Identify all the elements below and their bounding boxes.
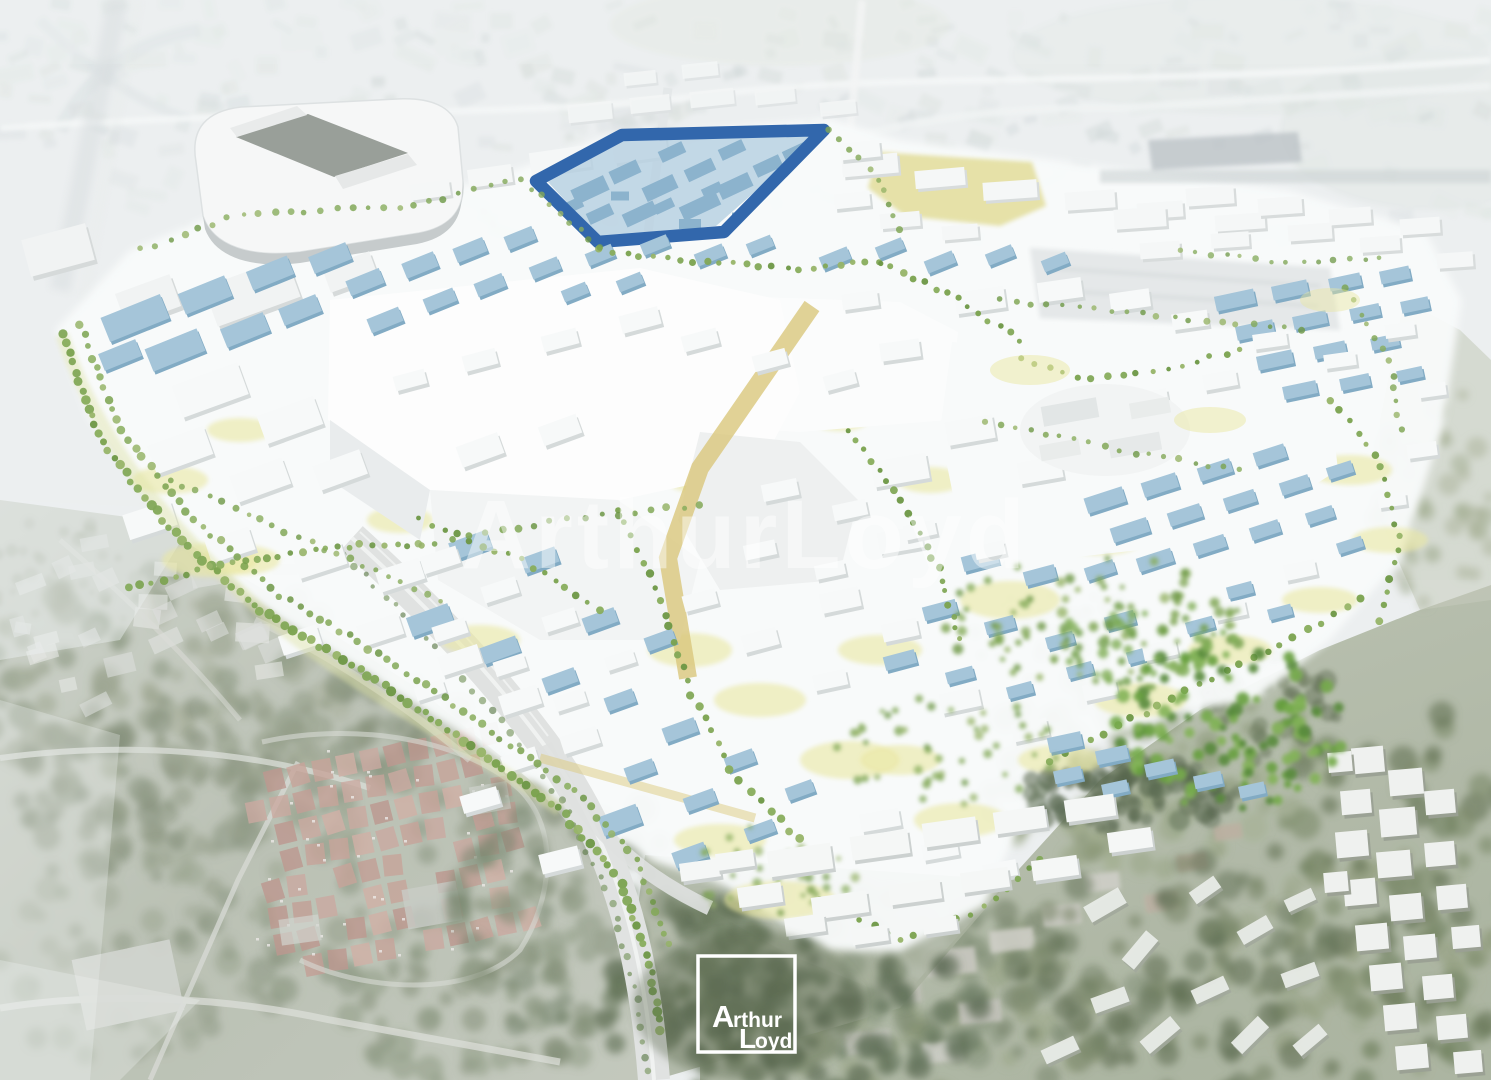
svg-text:ArthurLoyd: ArthurLoyd [461, 480, 1029, 589]
svg-text:oyd: oyd [755, 1030, 792, 1053]
svg-text:L: L [739, 1023, 756, 1054]
svg-text:A: A [712, 999, 734, 1034]
